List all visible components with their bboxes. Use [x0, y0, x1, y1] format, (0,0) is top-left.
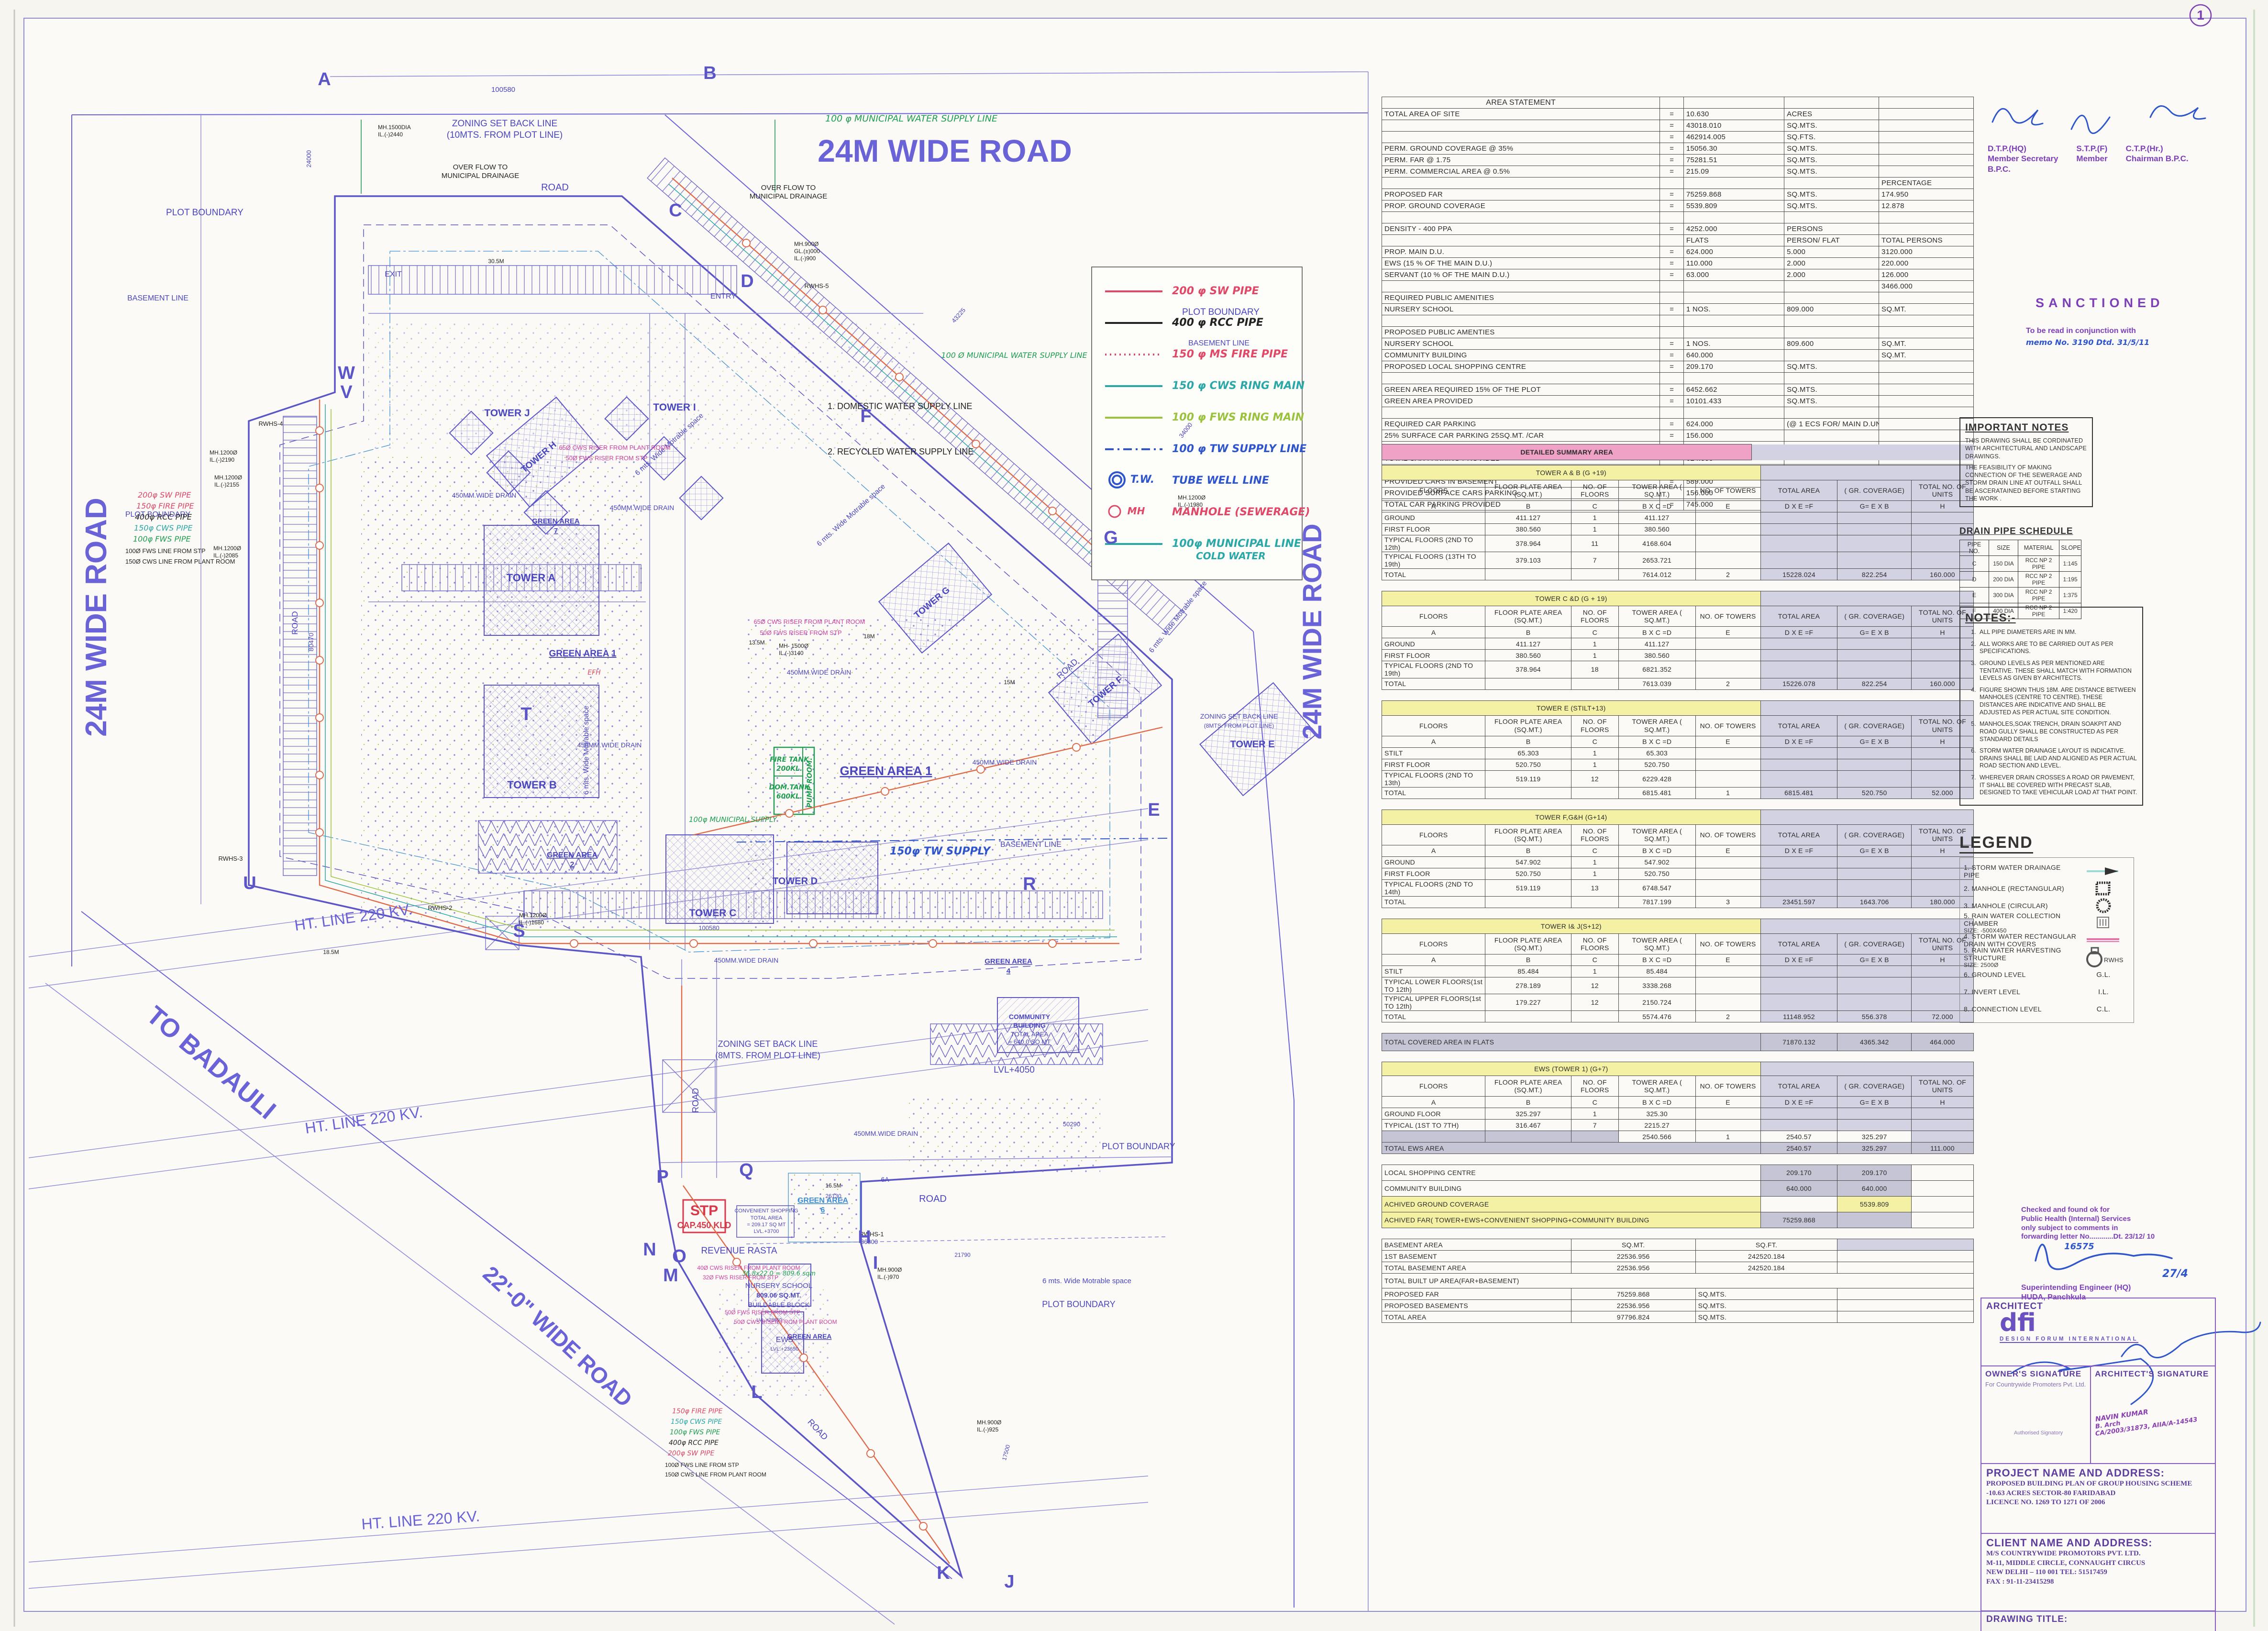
pipe-legend-prefix: MH	[1128, 505, 1145, 517]
plan-label: ZONING SET BACK LINE	[718, 1039, 818, 1049]
area-statement-row: TOTAL AREA OF SITE=10.630ACRES	[1382, 109, 1974, 120]
plan-label: EXIT	[385, 270, 402, 278]
tower-floor-row: TYPICAL FLOORS (13TH TO 19th)379.1037265…	[1382, 552, 1974, 569]
basement-row: TOTAL BASEMENT AREA22536.956242520.184	[1382, 1262, 1974, 1274]
engineer-line1: Superintending Engineer (HQ)	[2021, 1283, 2131, 1293]
plan-label: IL.(-)1980	[1178, 501, 1203, 508]
builtup-label: TOTAL BUILT UP AREA(FAR+BASEMENT)	[1382, 1274, 1974, 1288]
plan-label: 24M WIDE ROAD	[1297, 523, 1327, 739]
tower-floor-row: TYPICAL FLOORS (2ND TO 13th)519.11912622…	[1382, 770, 1974, 787]
plan-label: 80470	[307, 632, 315, 651]
boundary-letter: E	[1148, 800, 1160, 820]
plan-label: IL.(-)900	[794, 255, 816, 262]
plan-label: IL.(-)970	[877, 1274, 899, 1280]
summary-extra-row: ACHIVED FAR( TOWER+EWS+CONVENIENT SHOPPI…	[1382, 1212, 1974, 1228]
area-statement-row: DENSITY - 400 PPA=4252.000PERSONS	[1382, 223, 1974, 235]
tower-floor-row: FIRST FLOOR380.5601380.560	[1382, 524, 1974, 535]
title-block: ARCHITECT dfi DESIGN FORUM INTERNATIONAL…	[1980, 1298, 2216, 1631]
svg-text:RWHS: RWHS	[2104, 956, 2124, 964]
boundary-letter: Q	[739, 1160, 753, 1180]
plan-label: ROAD	[691, 1088, 700, 1113]
boundary-letter: A	[318, 69, 331, 89]
summary-table: TOWER F,G&H (G+14)FLOORSFLOOR PLATE AREA…	[1382, 810, 1974, 908]
plan-label: 4	[1007, 967, 1011, 975]
ews-table-title: EWS (TOWER 1) (G+7)	[1382, 1062, 1761, 1076]
sanctioned-stamp: SANCTIONED	[2036, 296, 2164, 311]
plan-label: 13.5M	[749, 639, 764, 646]
plan-label: GREEN AREA	[547, 851, 598, 859]
project-name-lines: PROPOSED BUILDING PLAN OF GROUP HOUSING …	[1986, 1479, 2210, 1508]
plan-label: MH.1200Ø	[214, 474, 242, 481]
pipe-legend-prefix: T.W.	[1130, 474, 1154, 486]
pipe-legend-label: 100 φ TW SUPPLY LINE	[1172, 443, 1306, 455]
area-statement-row: REQUIRED PUBLIC AMENITIES	[1382, 292, 1974, 304]
tower-floor-row: TYPICAL LOWER FLOORS(1st TO 12th)278.189…	[1382, 977, 1974, 994]
area-statement-row	[1382, 212, 1974, 223]
plan-label: TOWER C	[689, 908, 737, 919]
plan-label: = 209.17 SQ MT	[747, 1222, 786, 1228]
plan-label: OVER FLOW TO	[761, 184, 816, 192]
area-statement-row: PERCENTAGE	[1382, 178, 1974, 189]
tower-floor-row: STILT65.303165.303	[1382, 747, 1974, 759]
client-name-lines: M/S COUNTRYWIDE PROMOTORS PVT. LTD.M-11,…	[1986, 1549, 2210, 1587]
memo-line2: memo No. 3190 Dtd. 31/5/11	[2026, 337, 2198, 348]
area-statement-row: PROP. MAIN D.U.=624.0005.0003120.000	[1382, 246, 1974, 258]
boundary-letter: O	[672, 1246, 686, 1266]
plan-label: REVENUE RASTA	[701, 1246, 777, 1256]
plan-label: 809.06 SQ.MT.	[756, 1291, 801, 1299]
plan-label: 100Ø FWS LINE FROM STP	[665, 1462, 739, 1468]
plan-label: DOM.TANK	[769, 784, 810, 791]
pipe-legend-label: 150 φ CWS RING MAIN	[1172, 380, 1305, 392]
plan-label: MUNICIPAL DRAINAGE	[442, 172, 520, 180]
drain-schedule-row: C150 DIARCC NP 2 PIPE1:145	[1960, 556, 2081, 572]
pipe-legend-label: 100φ MUNICIPAL LINE	[1172, 538, 1301, 550]
plan-label: 18M	[863, 633, 874, 640]
legend-item: 2. MANHOLE (RECTANGULAR)	[1964, 880, 2130, 897]
legend-item: 6. GROUND LEVELG.L.	[1964, 966, 2130, 983]
plan-label: TOWER A	[507, 572, 556, 584]
tower-table-title: TOWER A & B (G +19)	[1382, 466, 1761, 480]
ews-total-row: TOTAL EWS AREA2540.57325.297111.000	[1382, 1143, 1974, 1154]
area-statement-row	[1382, 407, 1974, 419]
plan-label: 50Ø FWS RISER FROM STP	[725, 1309, 800, 1316]
plan-label: 100 φ MUNICIPAL WATER SUPPLY LINE	[825, 113, 997, 124]
plan-label: FIRE TANK	[770, 756, 809, 764]
plan-label: 100 Ø MUNICIPAL WATER SUPPLY LINE	[941, 351, 1087, 360]
boundary-letter: U	[243, 873, 256, 893]
tower-floor-row: FIRST FLOOR520.7501520.750	[1382, 759, 1974, 770]
plan-label: 6	[821, 1206, 825, 1214]
checked-number: 16575	[2064, 1242, 2179, 1253]
boundary-letter: N	[643, 1240, 656, 1260]
plan-label: 450MM.WIDE DRAIN	[610, 504, 675, 511]
storm-drain-arrow-icon	[2087, 867, 2120, 876]
plan-label: GREEN AREA	[787, 1332, 832, 1340]
plan-label: MH.1200Ø	[519, 912, 547, 919]
area-statement-row: =43018.010SQ.MTS.	[1382, 120, 1974, 132]
boundary-letter: J	[1004, 1572, 1014, 1592]
plan-label: IL.(-)2155	[214, 481, 239, 488]
plan-label: CONVENIENT SHOPPING	[734, 1208, 798, 1214]
drain-schedule-row: E300 DIARCC NP 2 PIPE1:375	[1960, 588, 2081, 603]
important-notes-para2: THE FEASIBILITY OF MAKING CONNECTION OF …	[1965, 464, 2087, 502]
summary-table: TOWER C &D (G + 19)FLOORSFLOOR PLATE ARE…	[1382, 591, 1974, 689]
tower-floor-row: FIRST FLOOR520.7501520.750	[1382, 868, 1974, 879]
boundary-letter: G	[1104, 528, 1118, 548]
boundary-letter: C	[669, 200, 682, 221]
plan-label: MH- 1500Ø	[779, 643, 808, 649]
plan-label: 6 mts. Wide Motrable space	[1042, 1277, 1131, 1285]
plan-label: PLOT BOUNDARY	[1102, 1142, 1175, 1151]
note-item: ALL WORKS ARE TO BE CARRIED OUT AS PER S…	[1978, 641, 2137, 655]
area-statement-row: SERVANT (10 % OF THE MAIN D.U.)=63.0002.…	[1382, 269, 1974, 281]
client-name-label: CLIENT NAME AND ADDRESS:	[1986, 1537, 2210, 1549]
summary-table: LOCAL SHOPPING CENTRE209.170209.170COMMU…	[1382, 1165, 1974, 1228]
drawing-sheet: 200 φ SW PIPE400 φ RCC PIPE150 φ MS FIRE…	[0, 0, 2268, 1631]
plan-label: 450MM.WIDE DRAIN	[854, 1130, 918, 1137]
boundary-letter: D	[741, 271, 753, 291]
plan-label: PLOT BOUNDARY	[1182, 307, 1260, 317]
tower-floor-row: GROUND411.1271411.127	[1382, 512, 1974, 524]
plan-label: 16.5M	[825, 1182, 841, 1189]
plan-label: 600KL.	[776, 793, 802, 800]
area-statement-row: 3466.000	[1382, 281, 1974, 292]
drain-schedule-title: DRAIN PIPE SCHEDULE	[1959, 526, 2081, 537]
plan-label: LVL.+3700	[754, 1229, 779, 1234]
summary-extra-row: LOCAL SHOPPING CENTRE209.170209.170	[1382, 1165, 1974, 1181]
summary-table: TOWER A & B (G +19)FLOORSFLOOR PLATE ARE…	[1382, 465, 1974, 580]
legend-item: 5. RAIN WATER COLLECTION CHAMBERSIZE: -5…	[1964, 914, 2130, 932]
boundary-letter: M	[663, 1265, 678, 1286]
boundary-letter: W	[338, 363, 355, 383]
plan-label: 26130	[825, 1193, 841, 1199]
owner-signature-for: For Countrywide Promoters Pvt. Ltd.	[1985, 1381, 2086, 1388]
owner-signature-label: OWNER'S SIGNATURE	[1985, 1369, 2086, 1379]
legend-item: 5. RAIN WATER HARVESTING STRUCTURESIZE: …	[1964, 949, 2130, 966]
note-item: FIGURE SHOWN THUS 18M. ARE DISTANCE BETW…	[1978, 687, 2137, 717]
boundary-letter: K	[937, 1563, 950, 1583]
tower-table-title: TOWER I& J(S+12)	[1382, 919, 1761, 933]
plan-label: 40Ø CWS RISER FROM PLANT ROOM	[697, 1265, 800, 1271]
plan-label: TOWER B	[507, 779, 556, 791]
total-covered-row: TOTAL COVERED AREA IN FLATS71870.1324365…	[1382, 1033, 1974, 1051]
plan-label: IL.(-)925	[977, 1426, 999, 1433]
important-notes-box: IMPORTANT NOTES THIS DRAWING SHALL BE CO…	[1959, 417, 2093, 507]
boundary-letter: F	[860, 406, 871, 426]
plan-label: MH.900Ø	[977, 1419, 1001, 1426]
plan-label: 50Ø FWS RISER FROM STP	[565, 455, 647, 462]
plan-label: 150Ø CWS LINE FROM PLANT ROOM	[125, 558, 235, 565]
legend-item: 1. STORM WATER DRAINAGE PIPE	[1964, 863, 2130, 880]
approval-stamps: D.T.P.(HQ)Member SecretaryB.P.C. S.T.P.(…	[1988, 144, 2236, 174]
plan-label: 200KL.	[776, 765, 802, 773]
plan-label: TOTAL AREA	[1011, 1031, 1049, 1038]
tower-table-title: TOWER E (STILT+13)	[1382, 700, 1761, 715]
detailed-summary-panel: DETAILED SUMMARY AREA TOWER A & B (G +19…	[1382, 444, 1974, 1333]
tower-floor-row: TYPICAL UPPER FLOORS(1st TO 12th)179.227…	[1382, 994, 1974, 1011]
legend-abbrev: G.L.	[2096, 971, 2111, 979]
dfi-logo-subtitle: DESIGN FORUM INTERNATIONAL	[2000, 1336, 2138, 1343]
area-statement-row: COMMUNITY BUILDING=640.000SQ.MT.	[1382, 350, 1974, 361]
stamp-stp: S.T.P.(F)Member	[2076, 144, 2107, 174]
area-statement-row	[1382, 373, 1974, 384]
pipe-legend-label: 200 φ SW PIPE	[1172, 285, 1259, 297]
rect-drain-icon	[2087, 937, 2120, 943]
plan-label: TOWER J	[484, 408, 530, 419]
area-statement-row: NURSERY SCHOOL=1 NOS.809.000SQ.MT.	[1382, 304, 1974, 315]
tower-floor-row: TYPICAL FLOORS (2ND TO 12th)378.96411416…	[1382, 535, 1974, 552]
plan-label: PLOT BOUNDARY	[166, 208, 243, 218]
pipe-legend-label: 150 φ MS FIRE PIPE	[1172, 348, 1288, 360]
plan-label: 400φ RCC PIPE	[669, 1439, 719, 1447]
plan-label: 200φ SW PIPE	[138, 490, 191, 499]
summary-final-row: TOTAL AREA97796.824SQ.MTS.	[1382, 1311, 1974, 1323]
tower-total-row: TOTAL7613.039215226.078822.254160.000	[1382, 678, 1974, 689]
plan-label: ROAD	[541, 182, 569, 193]
boundary-letter: I	[873, 1253, 878, 1273]
boundary-letter: H	[858, 1227, 871, 1247]
plan-label: 1. DOMESTIC WATER SUPPLY LINE	[828, 401, 972, 411]
plan-label: 24M WIDE ROAD	[818, 133, 1072, 168]
plan-label: MH.1200Ø	[213, 545, 241, 552]
basement-area-header: BASEMENT AREA	[1382, 1239, 1571, 1251]
summary-table: EWS (TOWER 1) (G+7)FLOORSFLOOR PLATE ARE…	[1382, 1062, 1974, 1154]
plan-label: LVL.+23650	[771, 1346, 799, 1352]
owner-auth-signatory: Authorised Signatory	[2014, 1430, 2086, 1436]
plan-label: OVER FLOW TO	[453, 163, 508, 171]
checked-stamp: Checked and found ok forPublic Health (I…	[2021, 1206, 2179, 1253]
plan-label: ENTRY	[710, 292, 736, 300]
plan-label: RWHS-2	[428, 904, 452, 911]
summary-final-row: PROPOSED BASEMENTS22536.956SQ.MTS.	[1382, 1300, 1974, 1311]
plan-label: MH.900Ø	[877, 1266, 902, 1273]
area-statement-row: GREEN AREA PROVIDED=10101.433SQ.MTS.	[1382, 396, 1974, 407]
plan-label: GREEN AREA 1	[549, 649, 617, 659]
summary-table: BASEMENT AREASQ.MT.SQ.FT.1ST BASEMENT225…	[1382, 1239, 1974, 1323]
plan-label: 150φ CWS PIPE	[671, 1418, 722, 1426]
notes-title: NOTES:-	[1965, 611, 2137, 625]
summary-final-row: PROPOSED FAR75259.868SQ.MTS.	[1382, 1288, 1974, 1300]
manhole-circ-icon	[2095, 898, 2112, 914]
pipe-legend-label: COLD WATER	[1196, 550, 1266, 562]
plan-label: RWHS-5	[804, 282, 829, 289]
pipe-legend-label: 400 φ RCC PIPE	[1172, 317, 1263, 329]
svg-text:1: 1	[2197, 8, 2204, 22]
tower-floor-row: TYPICAL FLOORS (2ND TO 14th)519.11913674…	[1382, 879, 1974, 896]
boundary-letter: R	[1023, 874, 1036, 894]
area-statement-row: PROPOSED LOCAL SHOPPING CENTRE=209.170SQ…	[1382, 361, 1974, 373]
plan-label: 32Ø FWS RISER FROM STP	[703, 1274, 778, 1281]
boundary-letter: T	[520, 704, 531, 724]
boundary-letter: P	[656, 1167, 668, 1187]
plan-label: GREEN AREA	[532, 517, 580, 525]
plan-label: GREEN AREA 1	[840, 764, 932, 778]
plan-label: ROAD	[919, 1194, 947, 1204]
area-statement-row: FLATSPERSON/ FLATTOTAL PERSONS	[1382, 235, 1974, 246]
plan-label: LVL+4050	[994, 1065, 1035, 1075]
summary-extra-row: COMMUNITY BUILDING640.000640.000	[1382, 1181, 1974, 1197]
plan-label: BASEMENT LINE	[1188, 339, 1250, 347]
dfi-logo: dfi	[2000, 1312, 2210, 1334]
plan-label: 150φ FIRE PIPE	[672, 1408, 723, 1415]
boundary-letter: B	[703, 63, 716, 83]
plan-label: MH.1200Ø	[1178, 494, 1206, 501]
note-item: WHEREVER DRAIN CROSSES A ROAD OR PAVEMEN…	[1978, 774, 2137, 797]
plan-label: 100580	[491, 86, 515, 94]
plan-label: EWS	[776, 1336, 793, 1344]
legend-abbrev: C.L.	[2097, 1005, 2111, 1013]
basement-row: 1ST BASEMENT22536.956242520.184	[1382, 1251, 1974, 1262]
note-item: STORM WATER DRAINAGE LAYOUT IS INDICATIV…	[1978, 747, 2137, 770]
plan-label: 7	[554, 527, 558, 535]
legend-title: LEGEND	[1959, 833, 2033, 854]
tower-total-row: TOTAL7817.199323451.5971643.706180.000	[1382, 896, 1974, 908]
plan-label: 400φ RCC PIPE	[135, 512, 192, 521]
tower-floor-row: GROUND411.1271411.127	[1382, 638, 1974, 650]
summary-extra-row: ACHIVED GROUND COVERAGE5539.809	[1382, 1197, 1974, 1212]
plan-label: MH.1500DIA	[378, 124, 411, 131]
area-statement-row	[1382, 315, 1974, 327]
area-statement-row: REQUIRED CAR PARKING=624.000(@ 1 ECS FOR…	[1382, 419, 1974, 430]
plan-label: TOTAL AREA	[751, 1215, 783, 1221]
plan-label: RWHS-4	[258, 420, 283, 427]
plan-label: MH.1200Ø	[210, 449, 237, 456]
stamp-ctp: C.T.P.(Hr.)Chairman B.P.C.	[2126, 144, 2189, 174]
legend-abbrev: I.L.	[2098, 988, 2109, 996]
plan-label: 100φ FWS PIPE	[670, 1429, 720, 1436]
plan-label: 450MM.WIDE DRAIN	[787, 668, 852, 676]
tower-floor-row: GROUND547.9021547.902	[1382, 856, 1974, 868]
plan-label: = 640.0 SQ MT	[1008, 1038, 1051, 1045]
plan-label: 24000	[305, 150, 312, 167]
plan-label: (8MTS. FROM PLOT LINE)	[715, 1051, 820, 1060]
plan-label: 21790	[954, 1252, 971, 1258]
boundary-letter: L	[751, 1382, 762, 1402]
plan-label: 150φ TW SUPPLY	[890, 845, 991, 857]
plan-label: (10MTS. FROM PLOT LINE)	[447, 130, 563, 140]
plan-label: 65Ø CWS RISER FROM PLANT ROOM	[753, 618, 865, 625]
plan-label: CAP.450 KLD	[677, 1220, 731, 1230]
legend-item: 8. CONNECTION LEVELC.L.	[1964, 1000, 2130, 1018]
plan-label: ROAD	[290, 611, 299, 634]
area-statement-row: PERM. GROUND COVERAGE @ 35%=15056.30SQ.M…	[1382, 143, 1974, 155]
plan-label: 50290	[1063, 1121, 1080, 1128]
plan-label: IL (-)3140	[779, 650, 804, 656]
plan-label: 450MM.WIDE DRAIN	[452, 491, 517, 499]
area-statement-row: NURSERY SCHOOL=1 NOS.809.600SQ.MT.	[1382, 338, 1974, 350]
legend-item: 7. INVERT LEVELI.L.	[1964, 983, 2130, 1000]
tower-floor-row: STILT85.484185.484	[1382, 965, 1974, 977]
plan-label: 100φ FWS PIPE	[133, 534, 191, 544]
plan-label: RWHS-3	[218, 855, 243, 862]
drain-schedule-row: D200 DIARCC NP 2 PIPE1:195	[1960, 572, 2081, 588]
plan-label: 6 mts. Wide Motrable space	[582, 706, 590, 795]
tower-table-title: TOWER F,G&H (G+14)	[1382, 810, 1761, 824]
note-item: GROUND LEVELS AS PER MENTIONED ARE TENTA…	[1978, 660, 2137, 682]
plan-label: ZONING SET BACK LINE	[1200, 712, 1278, 720]
plan-label: 6A	[881, 1176, 889, 1183]
plan-label: 200φ SW PIPE	[668, 1450, 715, 1457]
plan-label: 150φ CWS PIPE	[134, 523, 193, 533]
area-statement-row: GREEN AREA REQUIRED 15% OF THE PLOT=6452…	[1382, 384, 1974, 396]
important-notes-title: IMPORTANT NOTES	[1965, 422, 2087, 433]
important-notes-para1: THIS DRAWING SHALL BE CORDINATED WITH AR…	[1965, 437, 2087, 460]
drain-pipe-schedule: DRAIN PIPE SCHEDULE PIPE NO.SIZEMATERIAL…	[1959, 526, 2081, 619]
plan-label: EFH	[587, 669, 601, 677]
area-statement-row: PERM. COMMERCIAL AREA @ 0.5%=215.09SQ.MT…	[1382, 166, 1974, 178]
plan-label: 2	[570, 861, 575, 869]
plan-label: TOWER E	[1230, 739, 1275, 750]
area-statement-row: =462914.005SQ.FTS.	[1382, 132, 1974, 143]
plan-label: GREEN AREA	[985, 957, 1032, 965]
notes-box: NOTES:- ALL PIPE DIAMETERS ARE IN MM.ALL…	[1959, 607, 2143, 806]
plan-label: 450MM.WIDE DRAIN	[973, 758, 1037, 766]
plan-label: ZONING SET BACK LINE	[452, 119, 557, 129]
area-statement-row: PERM. FAR @ 1.75=75281.51SQ.MTS.	[1382, 155, 1974, 166]
tower-floor-row: FIRST FLOOR380.5601380.560	[1382, 650, 1974, 661]
plan-label: STP	[690, 1203, 718, 1219]
plan-label: (8MTS. FROM PLOT LINE)	[1204, 722, 1274, 729]
plan-label: NURSERY SCHOOL	[745, 1282, 812, 1290]
plan-label: PUMP ROOM.	[806, 758, 814, 808]
pipe-legend-label: TUBE WELL LINE	[1172, 475, 1269, 487]
plan-label: IL.(-)2085	[213, 552, 238, 559]
plan-label: COMMUNITY	[1009, 1013, 1051, 1021]
engineer-date: 27/4	[2162, 1268, 2188, 1280]
plan-label: MUNICIPAL DRAINAGE	[750, 192, 828, 200]
detailed-summary-title: DETAILED SUMMARY AREA	[1382, 444, 1752, 460]
note-item: ALL PIPE DIAMETERS ARE IN MM.	[1978, 629, 2137, 636]
area-statement-row: EWS (15 % OF THE MAIN D.U.)=110.0002.000…	[1382, 258, 1974, 269]
plan-label: 24M WIDE ROAD	[80, 498, 113, 736]
plan-label: 2. RECYCLED WATER SUPPLY LINE	[828, 447, 974, 456]
ews-floor-row: GROUND FLOOR325.2971325.30	[1382, 1108, 1974, 1120]
tower-total-row: TOTAL7614.012215228.024822.254160.000	[1382, 569, 1974, 580]
rainwater-chamber-icon	[2096, 916, 2111, 930]
plan-label: TOWER D	[773, 876, 818, 887]
plan-label: BASEMENT LINE	[1000, 841, 1062, 849]
tower-total-row: TOTAL5574.476211148.952556.37872.000	[1382, 1011, 1974, 1022]
legend-panel: LEGEND 1. STORM WATER DRAINAGE PIPE2. MA…	[1959, 833, 2134, 1023]
plan-label: MH.900Ø	[794, 241, 819, 247]
plan-label: BUILDABLE BLOCK	[748, 1301, 810, 1309]
area-statement-row: PROP. GROUND COVERAGE=5539.809SQ.MTS.12.…	[1382, 200, 1974, 212]
plan-label: GL.(±)000	[794, 248, 820, 255]
summary-table: TOTAL COVERED AREA IN FLATS71870.1324365…	[1382, 1033, 1974, 1051]
sanctioned-text: SANCTIONED	[2036, 296, 2164, 311]
summary-table: TOWER E (STILT+13)FLOORSFLOOR PLATE AREA…	[1382, 700, 1974, 799]
plan-label: 50Ø FWS RISER FROM STP	[760, 629, 841, 636]
boundary-letter: V	[340, 382, 353, 402]
plan-label: 15M	[1004, 679, 1015, 686]
plan-label: 50Ø CWS RISER FROM PLANT ROOM	[734, 1319, 837, 1325]
plan-label: 100580	[698, 924, 719, 932]
tower-total-row: TOTAL6815.48116815.481520.75052.000	[1382, 787, 1974, 799]
plan-label: IL.(-)2190	[210, 456, 234, 463]
plan-label: BASEMENT LINE	[127, 294, 188, 302]
area-statement-row: PROPOSED PUBLIC AMENTIES	[1382, 327, 1974, 338]
rwhs-icon: RWHS	[2083, 947, 2124, 968]
plan-label: 150φ FIRE PIPE	[136, 501, 194, 510]
area-statement-row: 25% SURFACE CAR PARKING 25SQ.MT. /CAR=15…	[1382, 430, 1974, 442]
plan-label: IL.(-)2440	[378, 131, 403, 138]
ews-floor-row: TYPICAL (1ST TO 7TH)316.46772215.27	[1382, 1120, 1974, 1131]
plan-label: 150Ø CWS LINE FROM PLANT ROOM	[665, 1471, 766, 1478]
plan-label: BUILDING	[1013, 1021, 1046, 1029]
drawing-title-label: DRAWING TITLE:	[1986, 1614, 2210, 1625]
note-item: MANHOLES,SOAK TRENCH, DRAIN SOAKPIT AND …	[1978, 721, 2137, 743]
